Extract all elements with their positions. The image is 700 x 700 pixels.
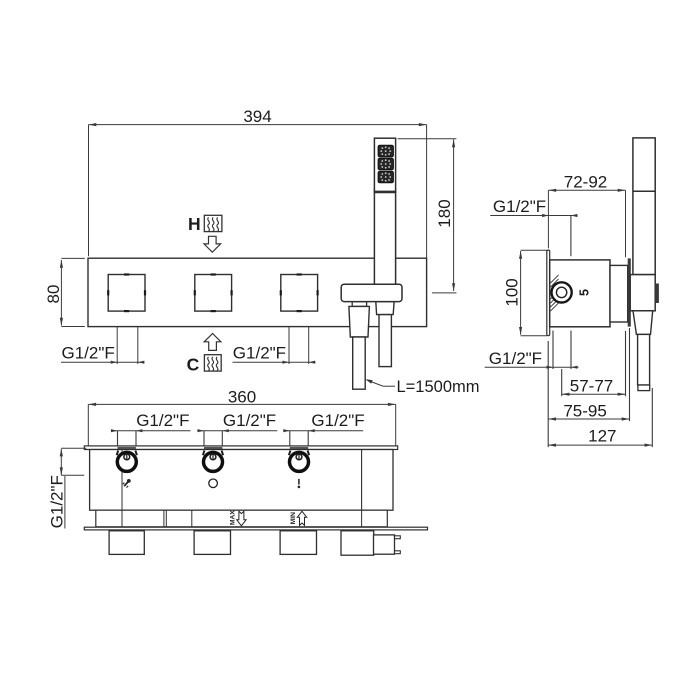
svg-text:G1/2"F: G1/2"F [311, 411, 364, 430]
svg-text:G1/2"F: G1/2"F [493, 197, 546, 216]
svg-text:G1/2"F: G1/2"F [223, 411, 276, 430]
svg-text:C: C [187, 354, 200, 374]
svg-text:72-92: 72-92 [564, 173, 607, 192]
svg-text:75-95: 75-95 [563, 401, 606, 420]
svg-text:394: 394 [243, 107, 271, 126]
svg-text:MAX: MAX [230, 510, 237, 525]
svg-text:360: 360 [228, 387, 256, 406]
svg-text:MIN: MIN [290, 512, 297, 524]
svg-text:100: 100 [502, 278, 521, 306]
svg-text:H: H [188, 214, 201, 234]
svg-text:G1/2"F: G1/2"F [47, 475, 66, 528]
svg-text:57-77: 57-77 [570, 377, 613, 396]
svg-text:80: 80 [44, 285, 63, 304]
svg-text:5: 5 [578, 289, 592, 296]
svg-text:180: 180 [435, 199, 454, 227]
svg-text:L=1500mm: L=1500mm [397, 378, 480, 396]
svg-text:G1/2"F: G1/2"F [489, 349, 542, 368]
svg-text:G1/2"F: G1/2"F [136, 411, 189, 430]
svg-text:G1/2"F: G1/2"F [62, 344, 115, 363]
svg-text:127: 127 [588, 426, 616, 445]
svg-text:G1/2"F: G1/2"F [233, 344, 286, 363]
